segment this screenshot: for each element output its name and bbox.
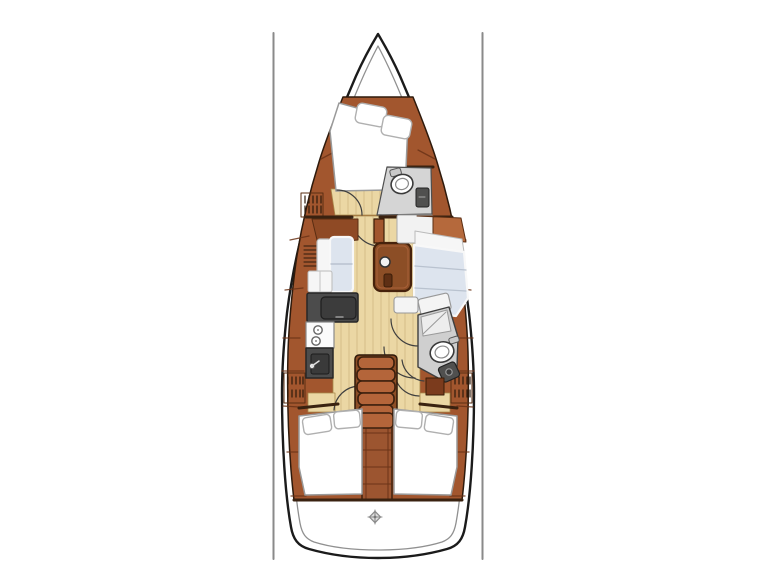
nav-seat bbox=[394, 297, 418, 313]
saloon-door-leaf bbox=[374, 219, 384, 243]
cabin-entry-floor-starboard bbox=[420, 393, 450, 412]
cabinet-aft-starboard bbox=[426, 378, 444, 395]
pillow-aft-starboard-inner bbox=[395, 410, 422, 429]
companionway-step-1 bbox=[358, 357, 394, 369]
table-mast-knob bbox=[380, 257, 390, 267]
table-leg bbox=[384, 274, 392, 287]
yacht-layout-page bbox=[0, 0, 768, 576]
sink-aft-bowl bbox=[446, 369, 452, 375]
companionway-step-3 bbox=[357, 381, 395, 393]
boat-layout-diagram bbox=[0, 0, 768, 576]
pillow-aft-starboard-outer bbox=[424, 414, 454, 435]
aft-divider-top-block bbox=[359, 413, 393, 428]
burner-forward-dot bbox=[315, 340, 317, 342]
companionway-step-2 bbox=[357, 369, 395, 381]
stove-top bbox=[321, 297, 356, 319]
companionway-step-4 bbox=[358, 393, 394, 405]
pillow-aft-port-outer bbox=[302, 414, 332, 435]
cabin-entry-floor-port bbox=[308, 393, 335, 412]
pillow-aft-port-inner bbox=[333, 410, 360, 429]
helm-mark-hub bbox=[374, 516, 377, 519]
burner-aft-dot bbox=[317, 329, 319, 331]
